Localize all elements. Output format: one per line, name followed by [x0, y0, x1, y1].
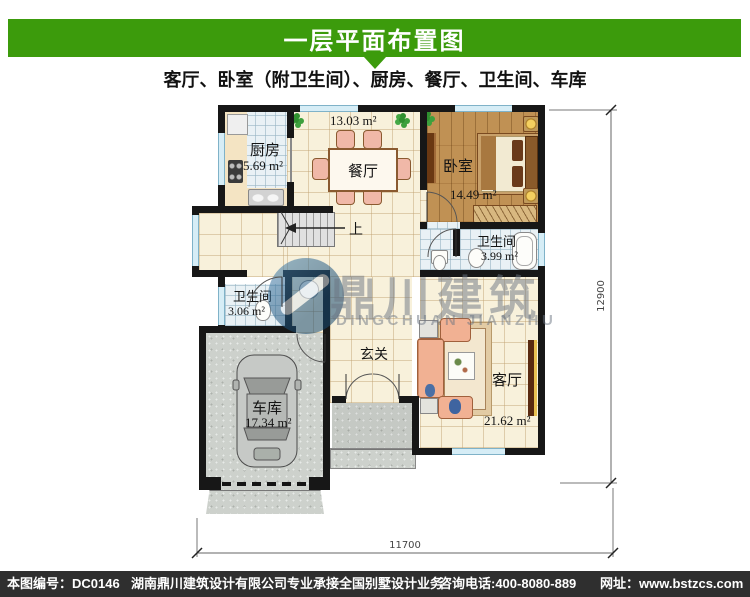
watermark-en: DINGCHUAN JIANZHU	[336, 312, 556, 329]
dining-chair	[363, 130, 382, 149]
footer-phone: 咨询电话:400-8080-889	[439, 571, 576, 597]
wall	[420, 112, 427, 190]
person-figure	[425, 384, 435, 397]
wall	[399, 396, 412, 403]
bath-common-label: 卫生间	[233, 286, 272, 305]
kitchen-label: 厨房	[250, 139, 280, 160]
footer-site: 网址：www.bstzcs.com	[600, 571, 743, 597]
stairs-up-label: 上	[349, 219, 363, 239]
side-table	[420, 398, 438, 414]
window	[300, 105, 358, 112]
bedroom-area: 14.49 m²	[450, 187, 497, 203]
kitchen-area: 5.69 m²	[243, 158, 283, 174]
pillow	[512, 140, 523, 161]
window	[218, 133, 225, 185]
wall	[287, 182, 294, 206]
wall	[323, 333, 330, 477]
pillow	[512, 166, 523, 187]
footer-bar: 本图编号：DC0146 湖南鼎川建筑设计有限公司专业承接全国别墅设计业务 咨询电…	[0, 571, 750, 597]
nightstand-lamp	[523, 116, 539, 132]
wall	[453, 229, 460, 256]
dimension-bottom: 11700	[389, 540, 421, 551]
person-figure	[449, 399, 461, 414]
wall	[420, 222, 427, 229]
wall	[287, 112, 294, 138]
watermark-logo-swoosh	[278, 272, 332, 318]
wall	[192, 206, 333, 213]
wall	[199, 333, 206, 490]
headboard	[525, 136, 538, 192]
dining-chair	[312, 158, 329, 180]
entry-steps	[330, 448, 416, 469]
hallway-floor	[199, 206, 287, 277]
dimension-right: 12900	[596, 280, 607, 312]
bath-common-area: 3.06 m²	[228, 304, 265, 319]
wall	[309, 477, 330, 490]
garage-ramp	[206, 490, 324, 514]
bedroom-label: 卧室	[443, 155, 473, 176]
sliding-door	[290, 138, 292, 182]
fridge	[227, 114, 248, 135]
doorway-patch	[427, 222, 460, 229]
stairs	[277, 212, 335, 247]
bath-master-label: 卫生间	[477, 231, 516, 250]
wall	[332, 396, 346, 403]
wall	[412, 396, 419, 455]
wall	[199, 326, 296, 333]
entry-label: 玄关	[360, 344, 388, 364]
footer-code: 本图编号：DC0146	[7, 571, 120, 597]
tv-cabinet	[528, 340, 537, 416]
living-label: 客厅	[492, 369, 522, 390]
window	[192, 215, 199, 266]
dining-label: 餐厅	[348, 160, 378, 181]
wall	[460, 222, 545, 229]
window	[455, 105, 512, 112]
page-title: 一层平面布置图	[284, 21, 466, 56]
kitchen-sink	[248, 189, 284, 206]
plant-icon	[399, 117, 405, 123]
coffee-table	[448, 352, 475, 380]
stove	[228, 160, 243, 183]
blanket	[481, 136, 496, 190]
dining-area: 13.03 m²	[330, 113, 377, 129]
garage-area: 17.34 m²	[245, 415, 292, 431]
title-bar: 一层平面布置图	[8, 19, 741, 57]
footer-company: 湖南鼎川建筑设计有限公司专业承接全国别墅设计业务	[131, 571, 443, 597]
window	[218, 287, 225, 325]
doorway-patch	[420, 190, 427, 222]
porch	[332, 403, 412, 448]
nightstand-lamp	[523, 188, 539, 204]
dining-table: 餐厅	[328, 148, 398, 192]
living-area: 21.62 m²	[484, 413, 531, 429]
wardrobe	[427, 133, 436, 183]
subtitle: 客厅、卧室（附卫生间）、厨房、餐厅、卫生间、车库	[0, 66, 750, 92]
page: 一层平面布置图 客厅、卧室（附卫生间）、厨房、餐厅、卫生间、车库 餐厅	[0, 0, 750, 597]
dining-chair	[336, 130, 355, 149]
window	[452, 448, 505, 455]
wall	[192, 270, 247, 277]
